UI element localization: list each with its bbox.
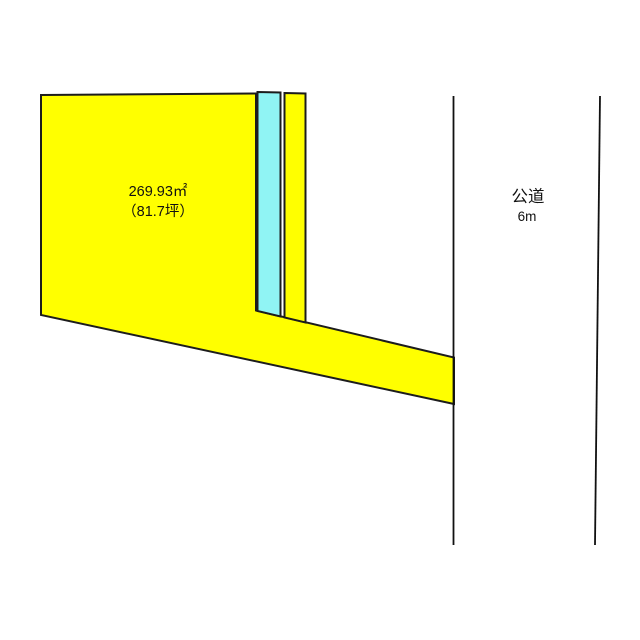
road-width-label: 6m [518, 209, 537, 224]
parcel-tsubo-label: （81.7坪） [122, 203, 194, 220]
canal-strip-shape [258, 92, 281, 317]
road-name-label: 公道 [512, 187, 545, 206]
parcel-area-label: 269.93㎡ [129, 183, 188, 200]
plot-diagram-svg: 269.93㎡ （81.7坪） 公道 6m [0, 0, 640, 640]
land-plot-diagram: 269.93㎡ （81.7坪） 公道 6m [0, 0, 640, 640]
road-line-right [595, 96, 600, 545]
main-parcel-shape [41, 94, 454, 405]
side-strip-shape [285, 93, 306, 323]
